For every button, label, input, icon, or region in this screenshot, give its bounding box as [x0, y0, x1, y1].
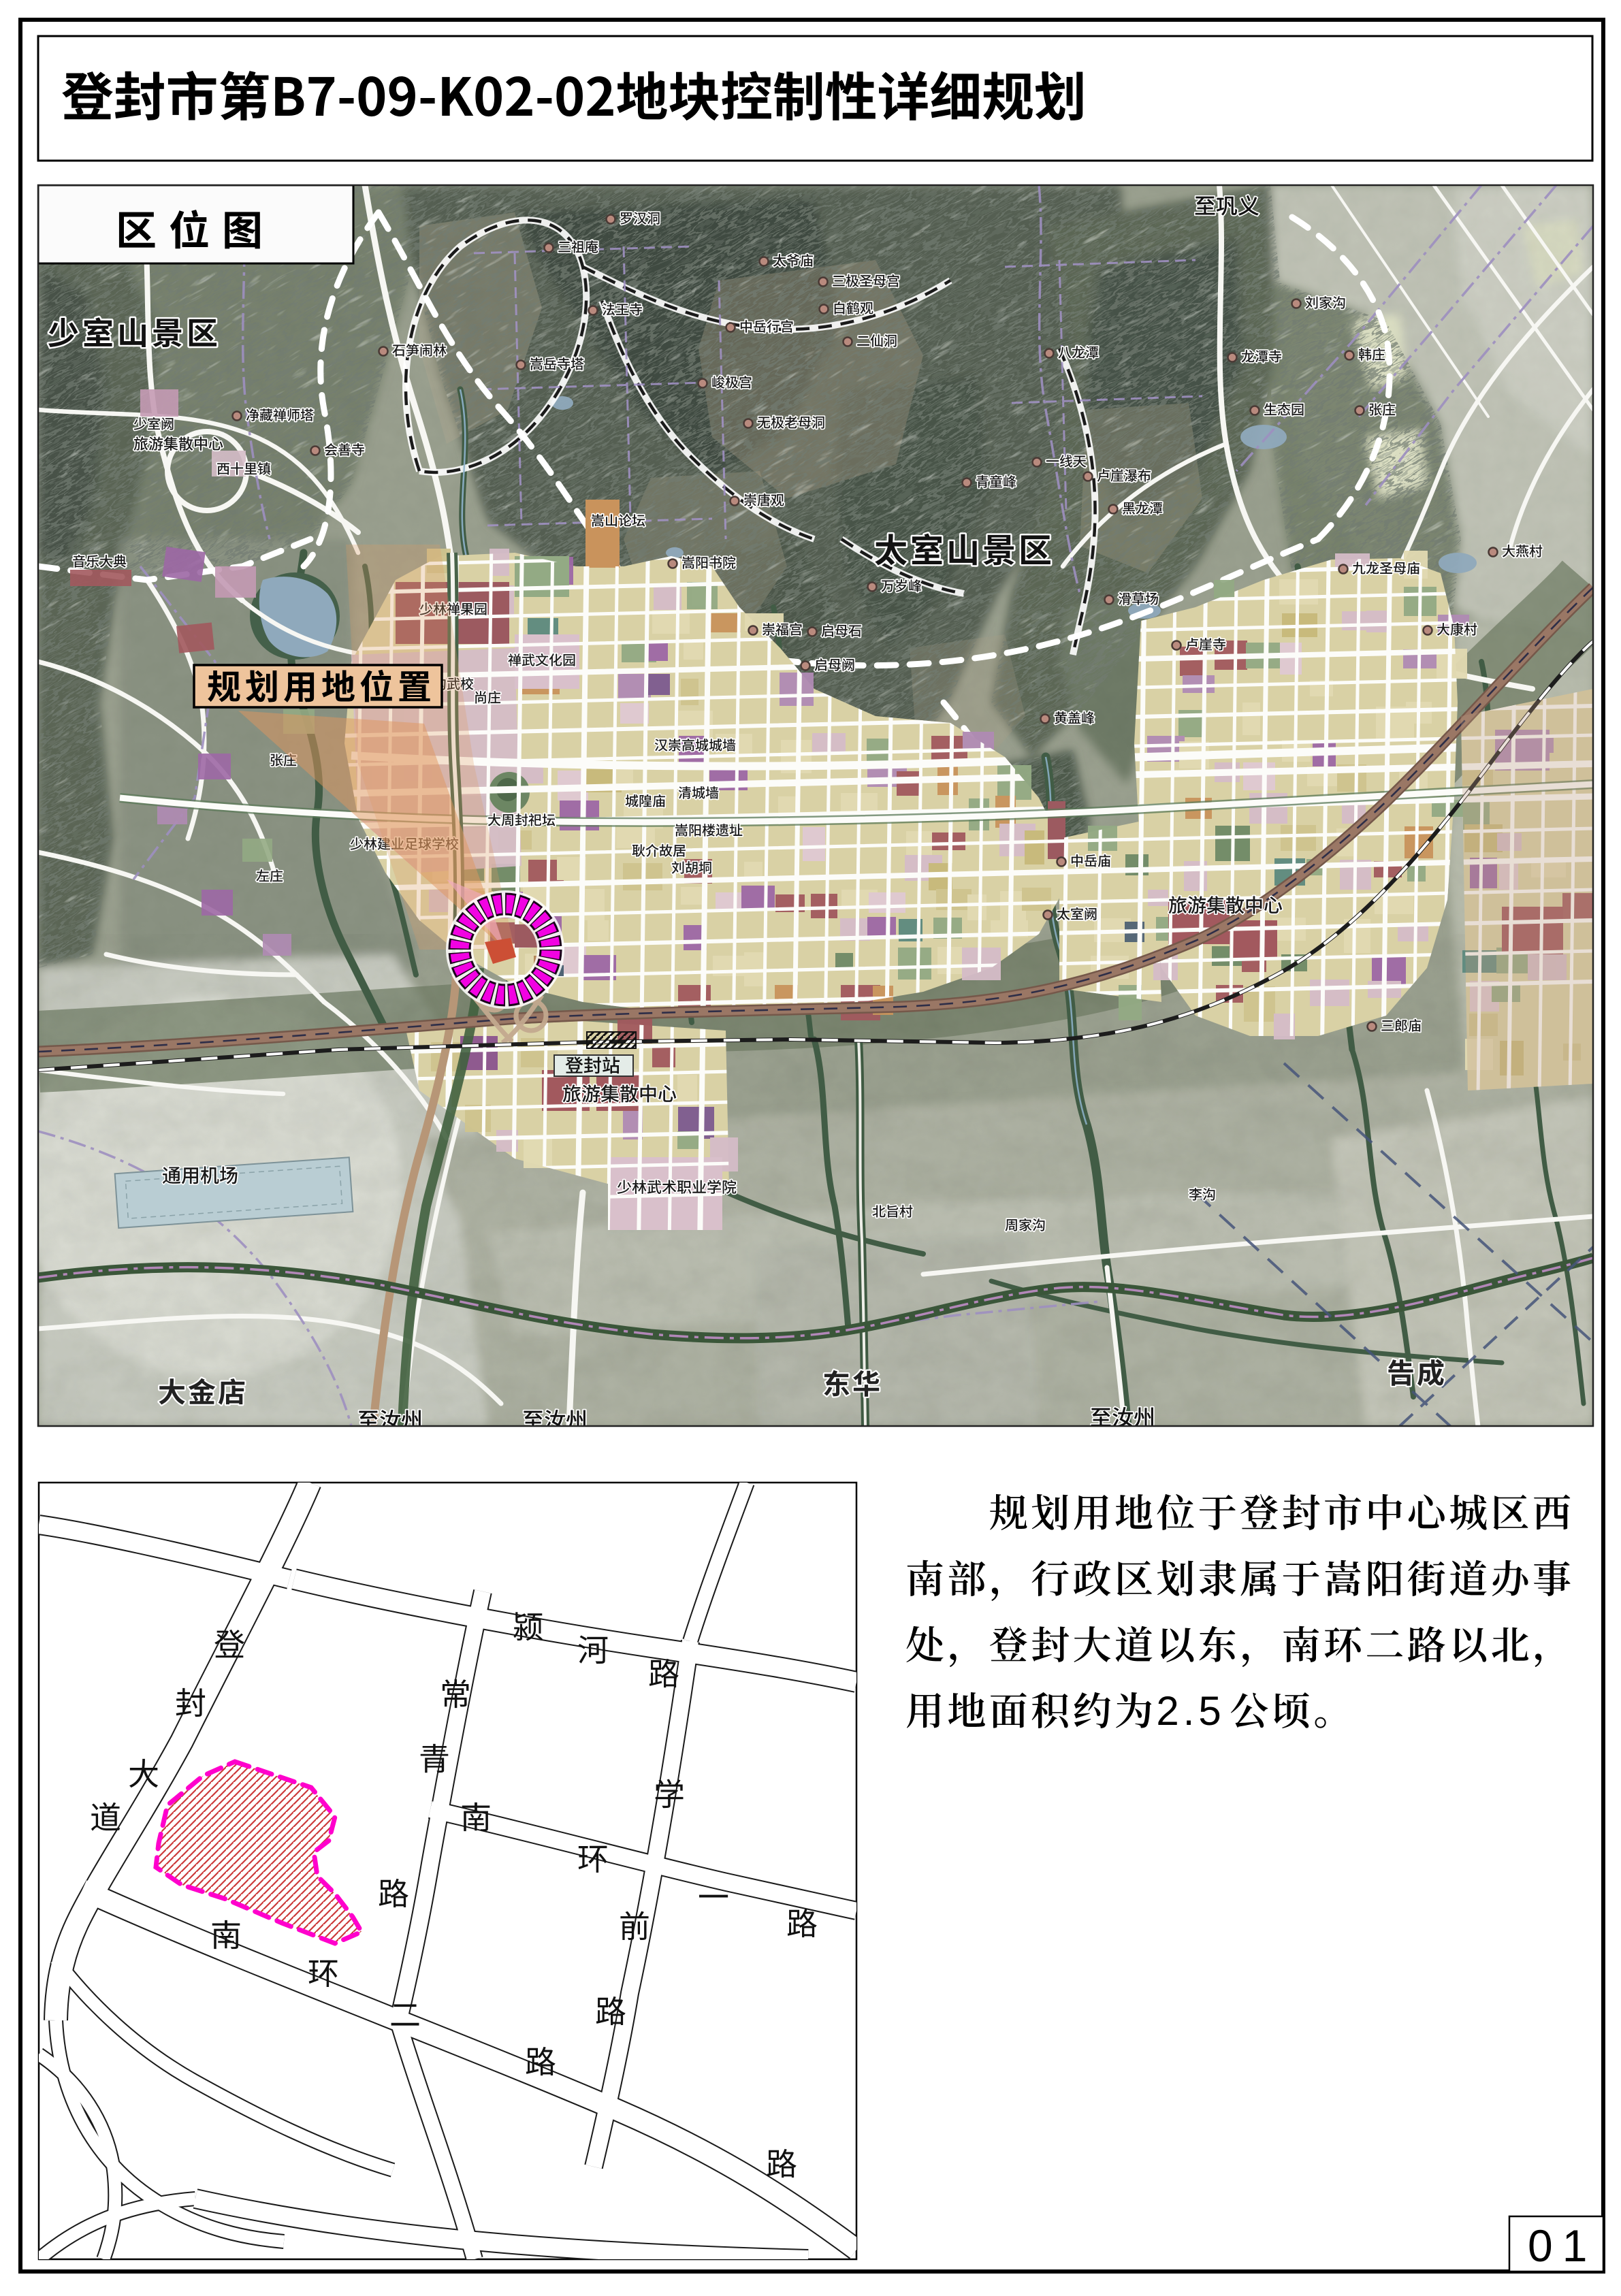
svg-text:01: 01 [1528, 2220, 1596, 2271]
svg-text:2.5: 2.5 [1156, 1688, 1225, 1734]
